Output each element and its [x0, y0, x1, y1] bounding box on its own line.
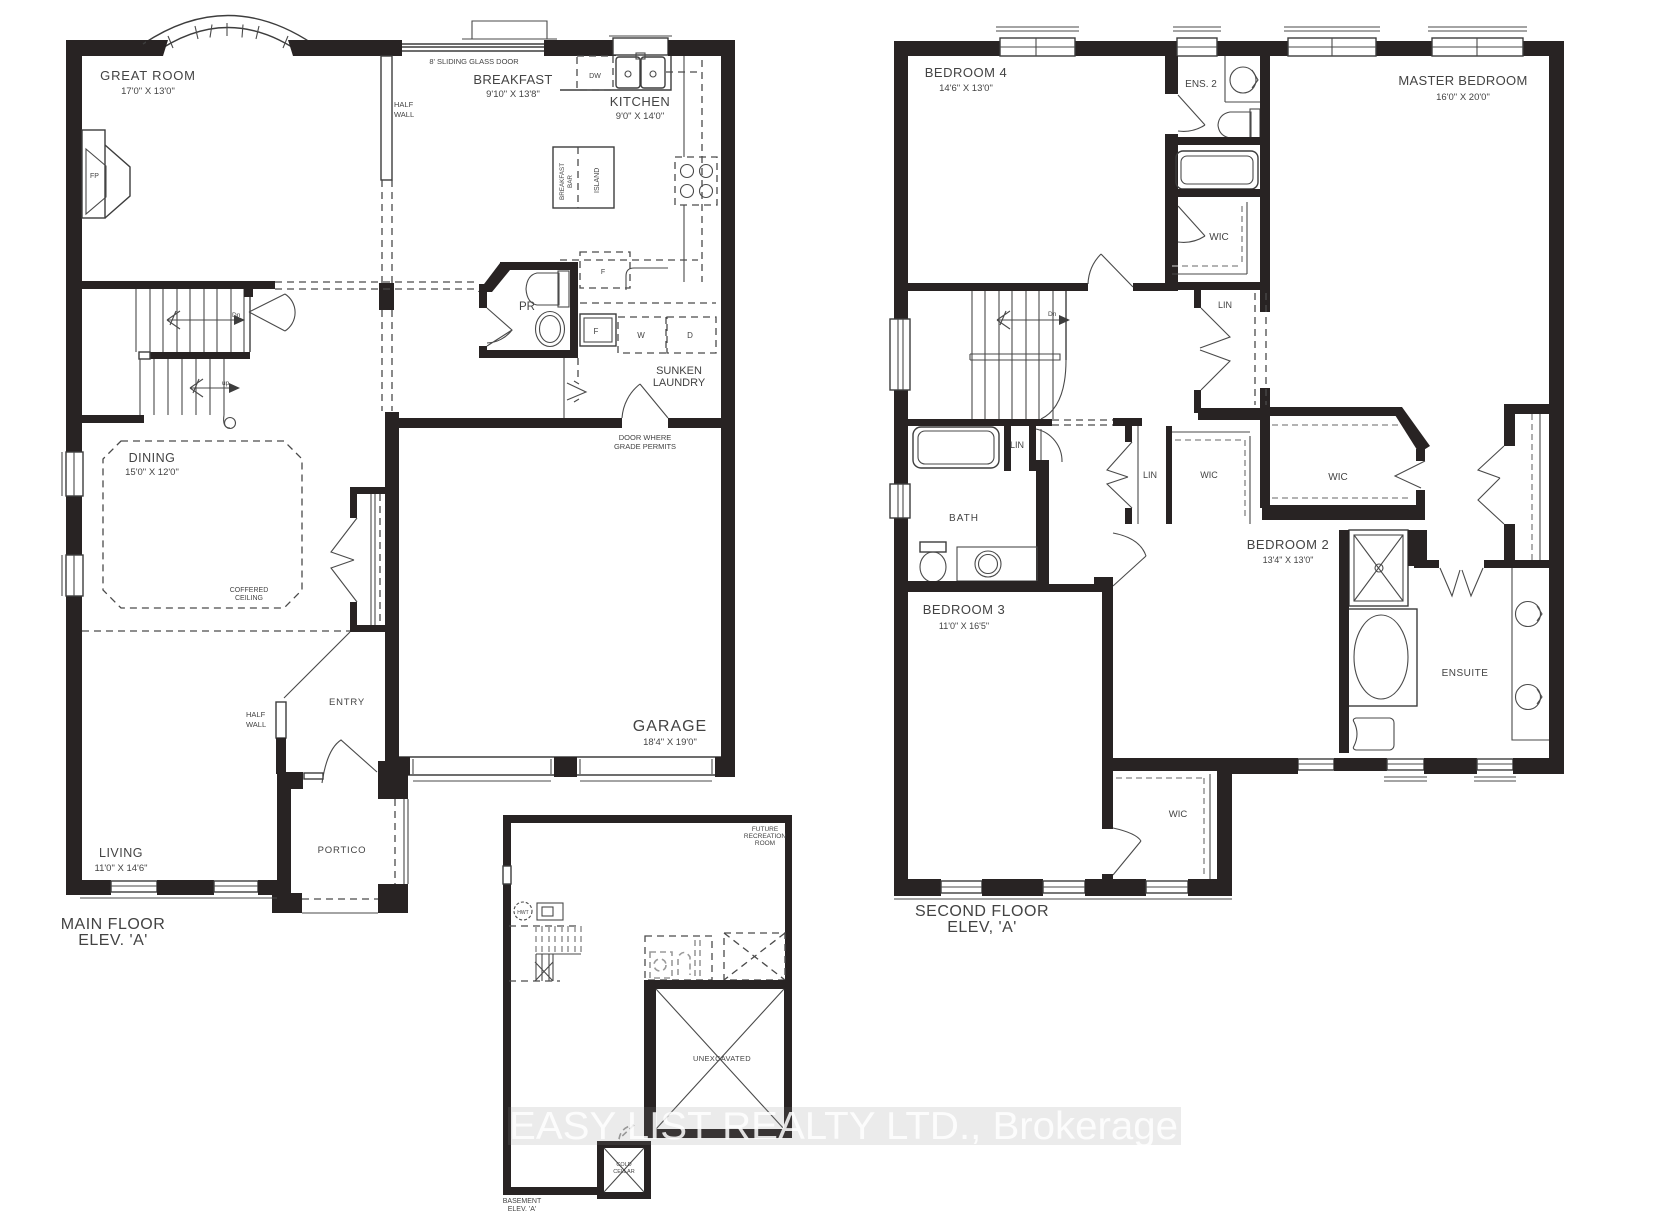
svg-text:HALF: HALF: [246, 710, 266, 719]
svg-text:SUNKEN: SUNKEN: [656, 365, 702, 377]
svg-text:MASTER BEDROOM: MASTER BEDROOM: [1398, 73, 1527, 88]
svg-text:ROOM: ROOM: [755, 840, 775, 847]
svg-text:CELLAR: CELLAR: [613, 1169, 634, 1175]
svg-text:LIN: LIN: [1010, 440, 1024, 450]
svg-text:BASEMENT: BASEMENT: [503, 1198, 542, 1205]
svg-text:ENSUITE: ENSUITE: [1442, 668, 1489, 679]
svg-text:16'0" X 20'0": 16'0" X 20'0": [1436, 92, 1490, 103]
svg-text:WIC: WIC: [1200, 470, 1218, 480]
svg-text:17'0" X 13'0": 17'0" X 13'0": [121, 86, 175, 97]
svg-text:9'10" X 13'8": 9'10" X 13'8": [486, 89, 540, 100]
svg-text:KITCHEN: KITCHEN: [610, 94, 671, 109]
svg-text:BEDROOM 2: BEDROOM 2: [1247, 537, 1330, 552]
svg-text:ENTRY: ENTRY: [329, 697, 365, 708]
svg-text:11'0" X 14'6": 11'0" X 14'6": [95, 863, 148, 874]
svg-text:11'0" X 16'5": 11'0" X 16'5": [939, 621, 989, 631]
svg-text:WALL: WALL: [246, 720, 266, 729]
svg-text:LAUNDRY: LAUNDRY: [653, 377, 706, 389]
svg-text:WIC: WIC: [1328, 472, 1347, 483]
svg-text:F: F: [601, 269, 605, 276]
svg-text:9'0" X 14'0": 9'0" X 14'0": [616, 111, 664, 122]
svg-text:ELEV. 'A': ELEV. 'A': [508, 1206, 537, 1213]
svg-text:FUTURE: FUTURE: [752, 826, 779, 833]
svg-text:F: F: [594, 327, 599, 336]
svg-text:UNEXCAVATED: UNEXCAVATED: [693, 1054, 751, 1063]
svg-text:CEILING: CEILING: [235, 595, 263, 602]
svg-text:WIC: WIC: [1209, 232, 1228, 243]
svg-text:GREAT ROOM: GREAT ROOM: [100, 68, 196, 83]
svg-text:LIVING: LIVING: [99, 846, 143, 860]
svg-text:ELEV. 'A': ELEV. 'A': [78, 932, 148, 949]
svg-text:COFFERED: COFFERED: [230, 587, 269, 594]
svg-text:BREAKFAST: BREAKFAST: [559, 163, 566, 200]
svg-text:FP: FP: [90, 173, 99, 180]
svg-text:PORTICO: PORTICO: [318, 845, 367, 856]
svg-text:18'4" X 19'0": 18'4" X 19'0": [643, 737, 697, 748]
svg-text:ENS. 2: ENS. 2: [1185, 79, 1217, 90]
svg-text:Dn: Dn: [1048, 311, 1057, 318]
svg-text:BEDROOM 4: BEDROOM 4: [925, 65, 1008, 80]
svg-text:D: D: [687, 331, 693, 340]
svg-text:COLD: COLD: [616, 1162, 631, 1168]
svg-text:WALL: WALL: [394, 110, 414, 119]
svg-text:W: W: [637, 331, 645, 340]
svg-text:HALF: HALF: [394, 100, 414, 109]
svg-text:8' SLIDING GLASS DOOR: 8' SLIDING GLASS DOOR: [429, 57, 519, 66]
svg-text:14'6" X 13'0": 14'6" X 13'0": [939, 83, 993, 94]
svg-text:ELEV, 'A': ELEV, 'A': [947, 919, 1017, 936]
svg-text:15'0" X 12'0": 15'0" X 12'0": [125, 467, 179, 478]
svg-text:HWT: HWT: [517, 910, 528, 916]
svg-text:LIN: LIN: [1143, 470, 1157, 480]
svg-text:DOOR WHERE: DOOR WHERE: [619, 433, 672, 442]
svg-text:RECREATION: RECREATION: [744, 833, 786, 840]
svg-text:up: up: [222, 380, 230, 387]
svg-text:BEDROOM 3: BEDROOM 3: [923, 602, 1006, 617]
svg-text:BATH: BATH: [949, 513, 979, 524]
svg-text:MAIN FLOOR: MAIN FLOOR: [61, 916, 166, 933]
svg-text:WIC: WIC: [1169, 809, 1188, 820]
svg-text:BREAKFAST: BREAKFAST: [473, 72, 552, 87]
svg-text:GARAGE: GARAGE: [633, 718, 707, 735]
svg-text:ISLAND: ISLAND: [594, 168, 601, 193]
svg-text:DW: DW: [589, 73, 601, 80]
svg-text:EASY LIST REALTY LTD., Brokera: EASY LIST REALTY LTD., Brokerage: [509, 1105, 1178, 1148]
svg-text:DINING: DINING: [129, 451, 176, 465]
svg-text:SECOND FLOOR: SECOND FLOOR: [915, 903, 1049, 920]
svg-text:GRADE PERMITS: GRADE PERMITS: [614, 442, 676, 451]
svg-text:LIN: LIN: [1218, 300, 1232, 310]
svg-text:Dn: Dn: [232, 312, 241, 319]
svg-text:BAR: BAR: [567, 175, 574, 188]
svg-text:13'4" X 13'0": 13'4" X 13'0": [1263, 555, 1314, 565]
